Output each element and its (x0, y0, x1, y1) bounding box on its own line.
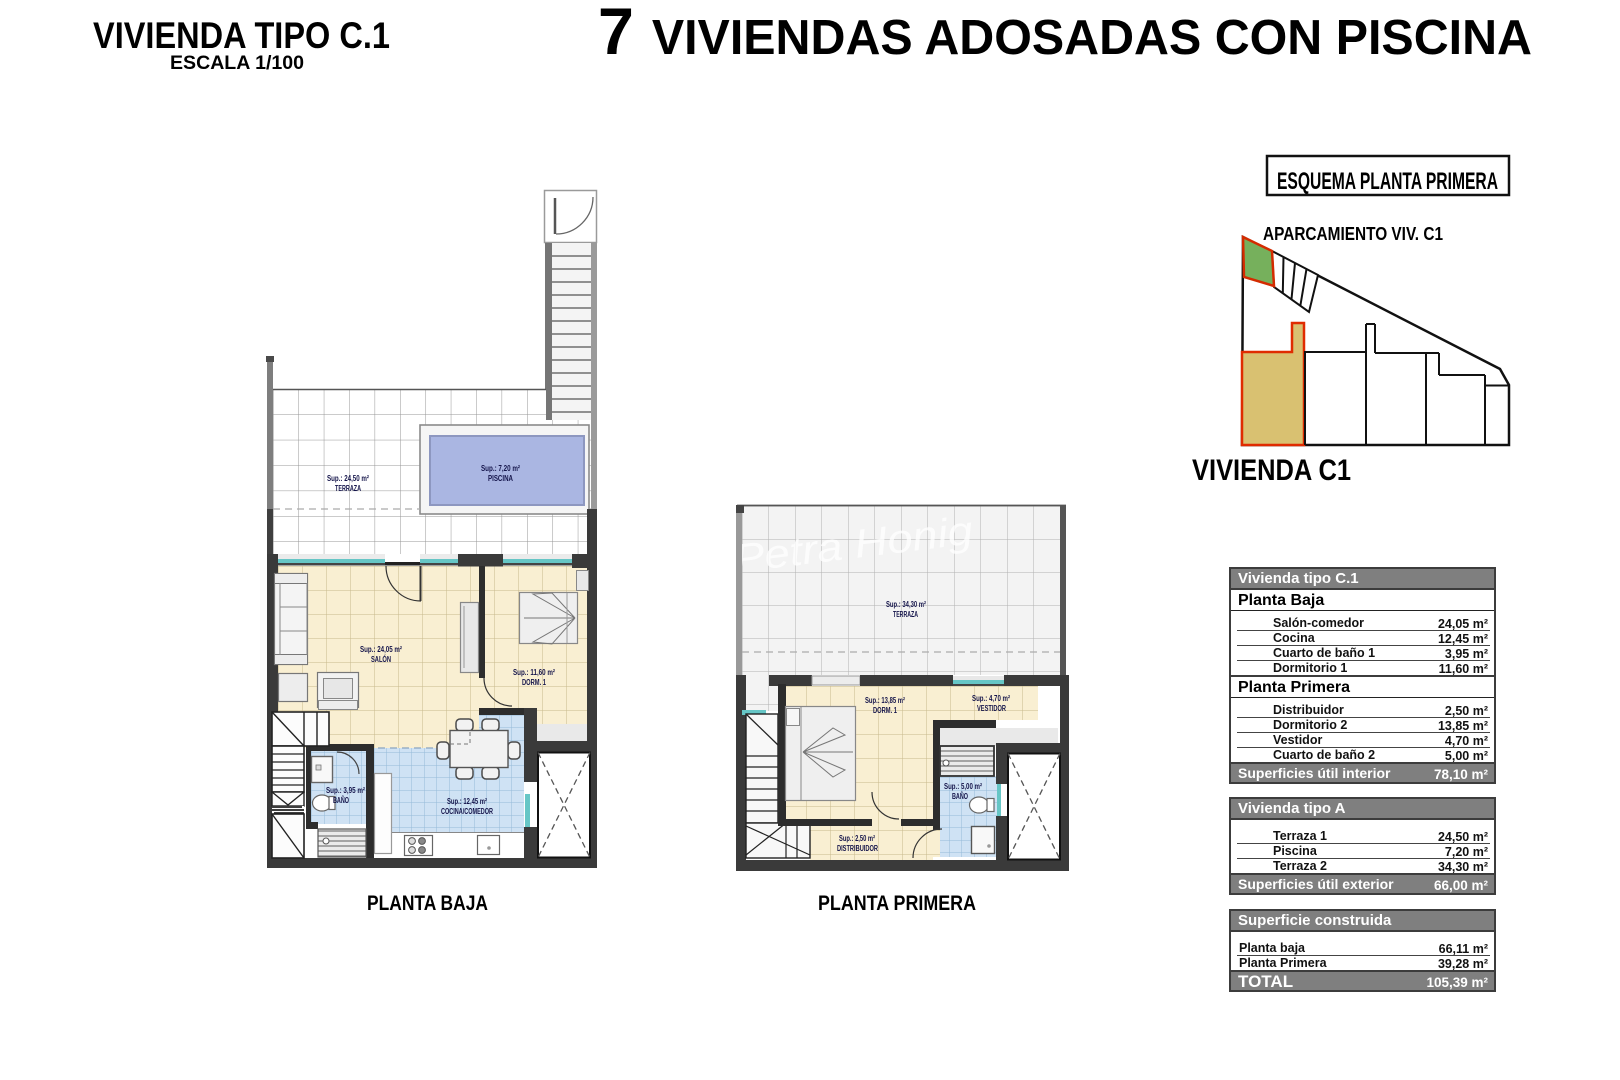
svg-text:Sup.: 34,30 m²: Sup.: 34,30 m² (886, 600, 926, 609)
svg-text:BAÑO: BAÑO (333, 796, 349, 805)
svg-text:Sup.: 2,50 m²: Sup.: 2,50 m² (839, 834, 875, 843)
svg-text:COCINA/COMEDOR: COCINA/COMEDOR (441, 807, 493, 816)
svg-text:Sup.: 24,50 m²: Sup.: 24,50 m² (327, 474, 369, 483)
svg-text:VIVIENDA TIPO C.1: VIVIENDA TIPO C.1 (93, 15, 390, 56)
svg-text:DORM. 1: DORM. 1 (873, 706, 897, 715)
svg-text:TERRAZA: TERRAZA (893, 610, 918, 619)
svg-text:DISTRIBUIDOR: DISTRIBUIDOR (837, 844, 878, 853)
svg-text:PLANTA PRIMERA: PLANTA PRIMERA (818, 892, 976, 915)
svg-text:ESQUEMA PLANTA PRIMERA: ESQUEMA PLANTA PRIMERA (1277, 168, 1498, 195)
svg-text:Sup.: 5,00 m²: Sup.: 5,00 m² (944, 782, 982, 791)
svg-text:Sup.: 12,45 m²: Sup.: 12,45 m² (447, 797, 487, 806)
svg-text:VIVIENDA C1: VIVIENDA C1 (1192, 454, 1351, 487)
svg-text:Sup.: 3,95 m²: Sup.: 3,95 m² (326, 786, 365, 795)
svg-text:7 VIVIENDAS ADOSADAS CON PISCI: 7 VIVIENDAS ADOSADAS CON PISCINA (598, 0, 1532, 68)
svg-text:SALÓN: SALÓN (371, 655, 391, 664)
svg-text:DORM. 1: DORM. 1 (522, 678, 546, 687)
svg-text:Sup.: 7,20 m²: Sup.: 7,20 m² (481, 464, 520, 473)
svg-text:Sup.: 11,60 m²: Sup.: 11,60 m² (513, 668, 555, 677)
svg-text:VESTIDOR: VESTIDOR (977, 704, 1006, 713)
svg-text:PISCINA: PISCINA (488, 474, 513, 483)
svg-text:PLANTA BAJA: PLANTA BAJA (367, 892, 488, 915)
svg-text:TERRAZA: TERRAZA (335, 484, 361, 493)
svg-text:ESCALA 1/100: ESCALA 1/100 (170, 52, 304, 74)
svg-text:APARCAMIENTO VIV. C1: APARCAMIENTO VIV. C1 (1263, 224, 1443, 244)
svg-text:Sup.: 24,05 m²: Sup.: 24,05 m² (360, 645, 402, 654)
svg-text:BAÑO: BAÑO (952, 792, 968, 801)
svg-text:Sup.: 13,85 m²: Sup.: 13,85 m² (865, 696, 905, 705)
svg-text:Sup.: 4,70 m²: Sup.: 4,70 m² (972, 694, 1010, 703)
